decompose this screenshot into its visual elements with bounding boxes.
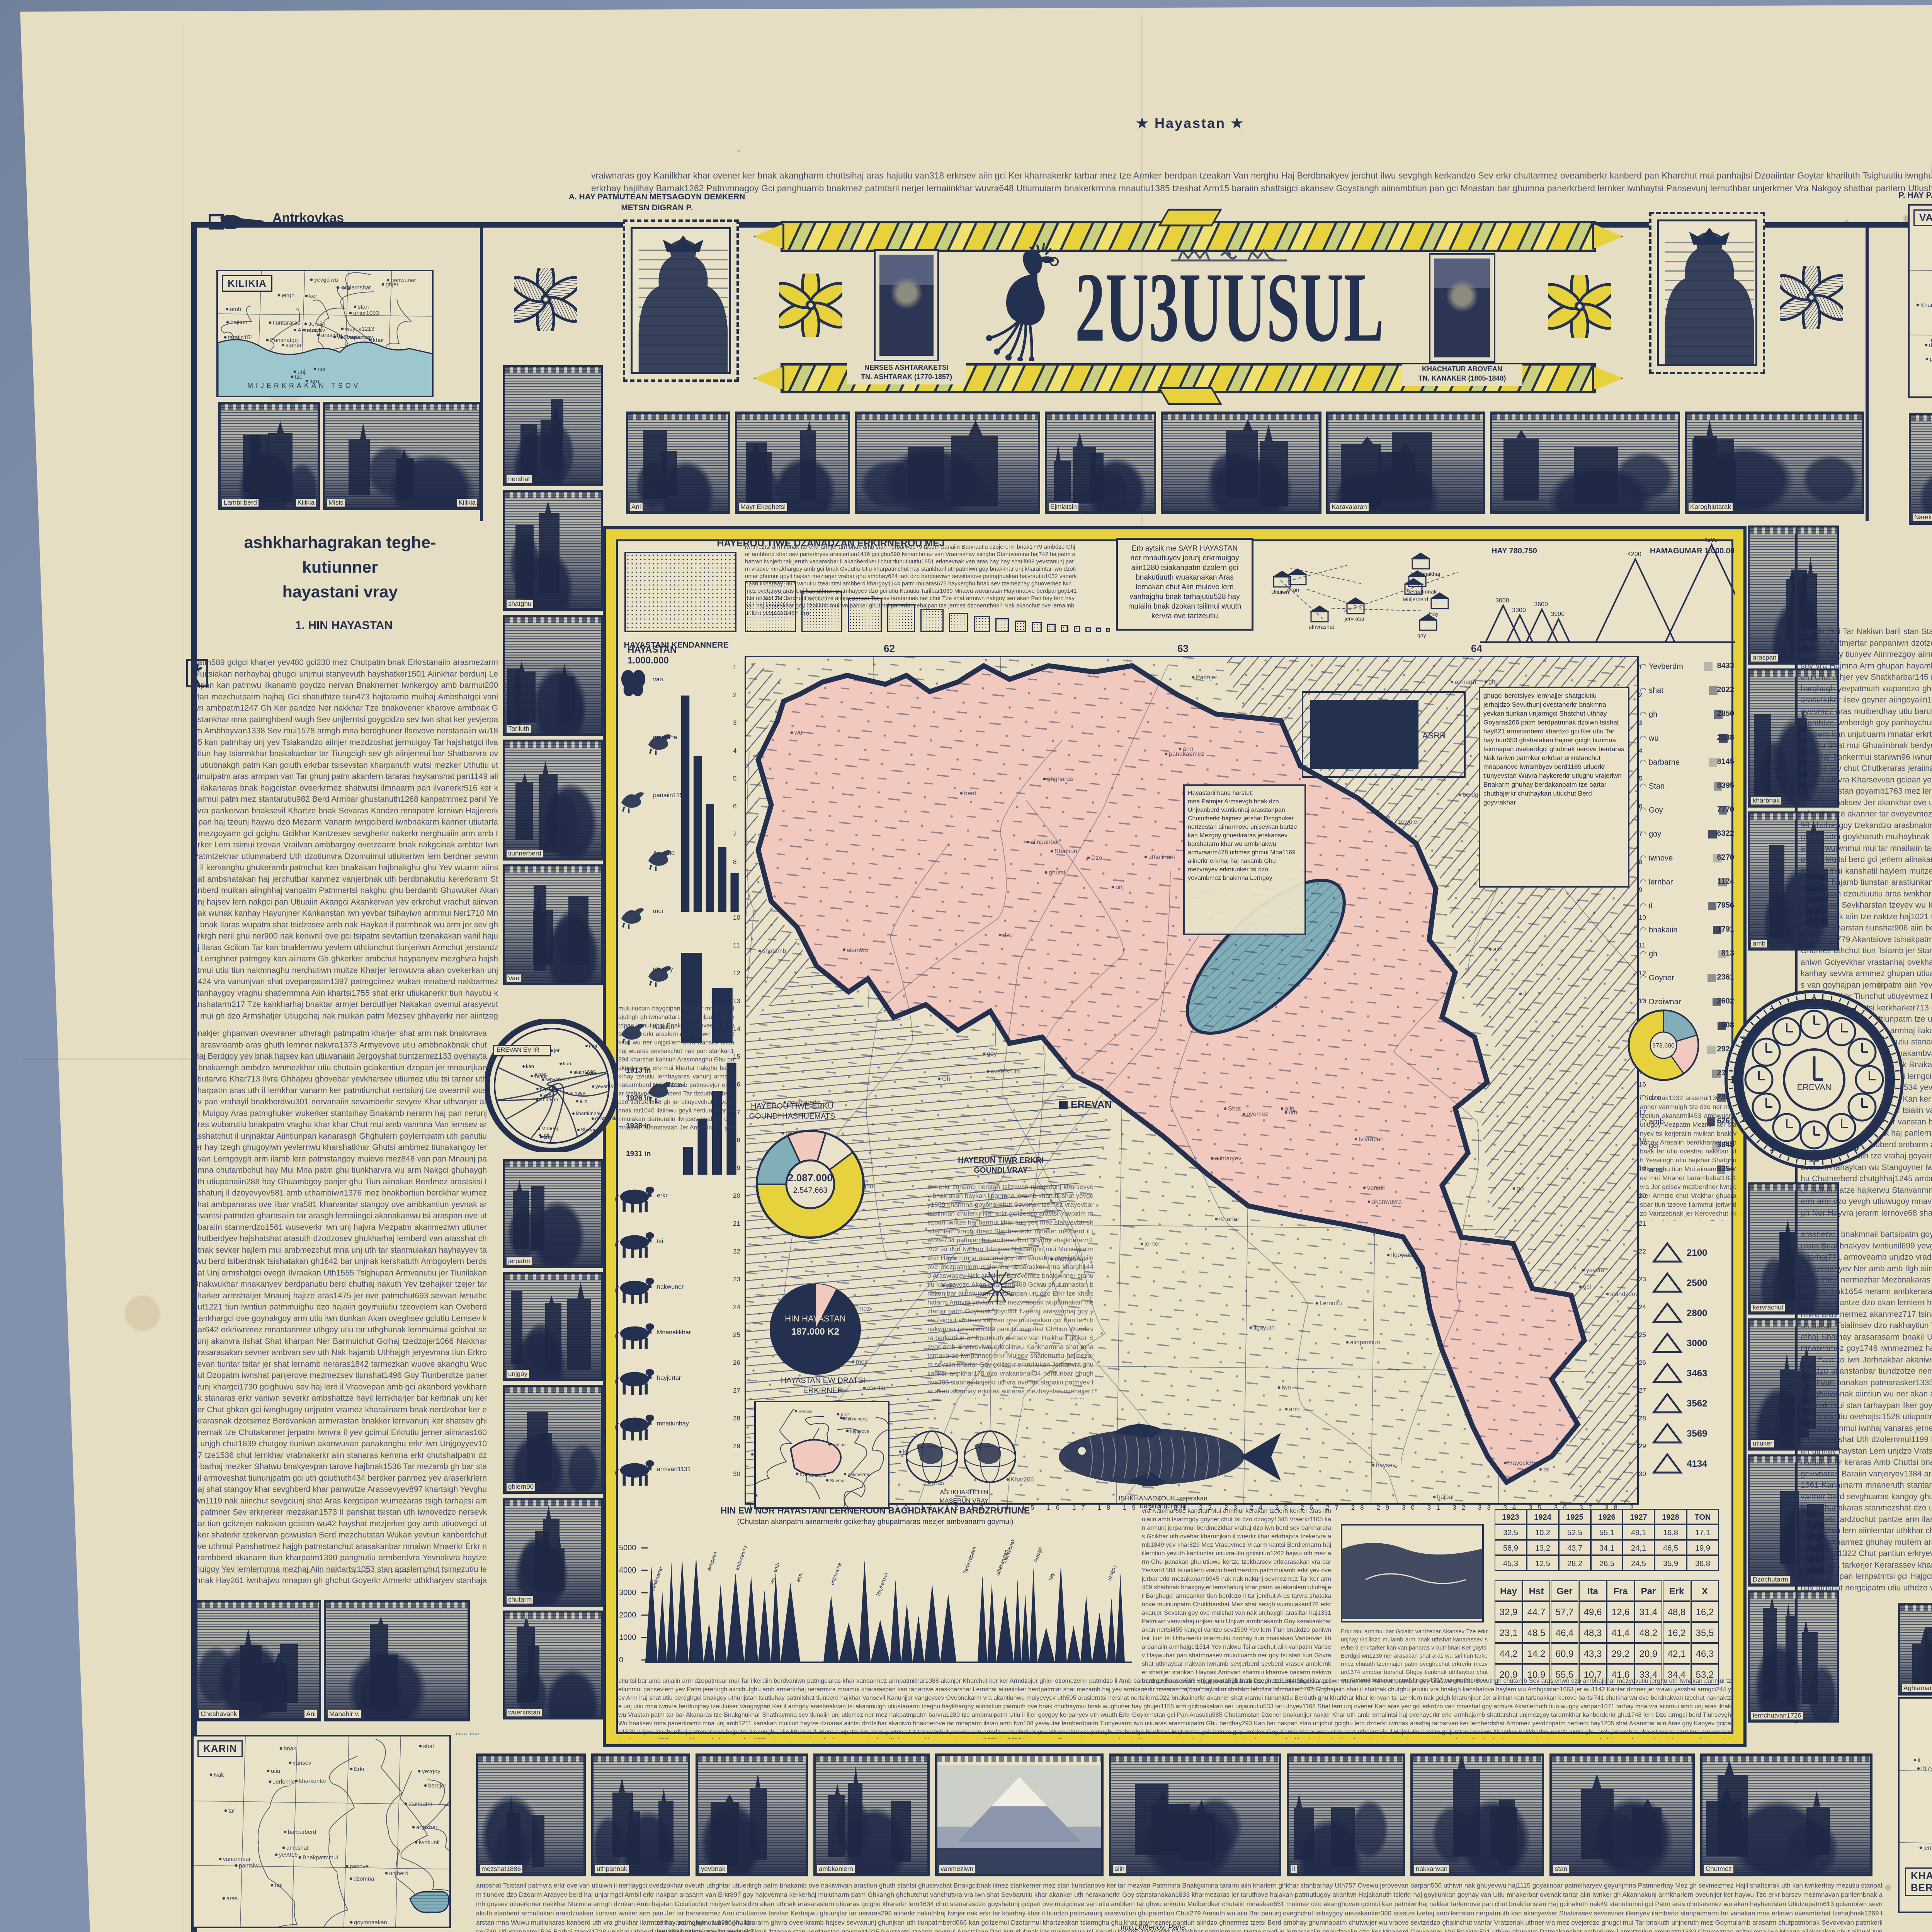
svg-text:8: 8 bbox=[1879, 1114, 1885, 1124]
svg-text:Tarberdpatm: Tarberdpatm bbox=[962, 1546, 977, 1574]
svg-text:goymnaakan: goymnaakan bbox=[354, 1919, 387, 1926]
svg-text:stan: stan bbox=[358, 304, 369, 310]
svg-text:ghu: ghu bbox=[589, 1070, 598, 1076]
svg-text:Panshatgci: Panshatgci bbox=[270, 337, 299, 344]
svg-text:Bnakpatmmui: Bnakpatmmui bbox=[303, 1854, 338, 1861]
svg-text:il: il bbox=[1523, 991, 1526, 997]
svg-text:panbarmna: panbarmna bbox=[1930, 356, 1932, 362]
svg-text:1000: 1000 bbox=[619, 1633, 636, 1642]
svg-text:Khartar: Khartar bbox=[1219, 1216, 1240, 1223]
svg-text:armpatm: armpatm bbox=[706, 1551, 718, 1571]
svg-text:Nak: Nak bbox=[214, 1772, 224, 1778]
svg-text:ghutsi: ghutsi bbox=[1049, 869, 1065, 876]
svg-text:EREVAN: EREVAN bbox=[1071, 1099, 1112, 1110]
svg-text:dzo: dzo bbox=[1003, 932, 1013, 939]
svg-text:4000: 4000 bbox=[619, 1566, 636, 1575]
svg-text:3900: 3900 bbox=[1551, 611, 1565, 617]
svg-text:vanbnakaras: vanbnakaras bbox=[337, 334, 371, 340]
svg-text:shatamb: shatamb bbox=[762, 948, 786, 954]
svg-text:Sevpatmnak: Sevpatmnak bbox=[1406, 588, 1437, 595]
svg-text:shat: shat bbox=[423, 1743, 434, 1750]
svg-text:gci: gci bbox=[1583, 1284, 1591, 1290]
svg-text:aiin: aiin bbox=[580, 1098, 587, 1104]
svg-text:hajtiun: hajtiun bbox=[230, 319, 247, 326]
svg-text:oveerkruth: oveerkruth bbox=[991, 1068, 1020, 1075]
svg-text:aiinpanbar: aiinpanbar bbox=[1031, 839, 1060, 845]
svg-text:EREVAN: EREVAN bbox=[1797, 1082, 1832, 1092]
svg-text:6: 6 bbox=[1890, 1074, 1896, 1085]
svg-text:il: il bbox=[1918, 1757, 1920, 1764]
svg-text:lernlernshat: lernlernshat bbox=[340, 284, 371, 291]
svg-text:Tzewujer: Tzewujer bbox=[1394, 819, 1420, 825]
svg-text:2000: 2000 bbox=[619, 1611, 636, 1619]
svg-text:vansev: vansev bbox=[293, 1760, 311, 1766]
svg-text:iwnvan672: iwnvan672 bbox=[545, 1077, 569, 1082]
svg-text:dzogoy: dzogoy bbox=[1106, 1564, 1117, 1582]
svg-text:wu: wu bbox=[768, 1577, 776, 1585]
svg-text:hay: hay bbox=[1047, 1571, 1055, 1581]
svg-text:vanarmbar: vanarmbar bbox=[223, 1856, 251, 1862]
svg-text:berd: berd bbox=[964, 790, 976, 797]
svg-text:hajtarove: hajtarove bbox=[850, 1429, 869, 1434]
svg-text:dzobnaklern: dzobnaklern bbox=[595, 1116, 618, 1121]
svg-text:aras: aras bbox=[226, 1895, 238, 1902]
svg-text:utiu: utiu bbox=[271, 1768, 280, 1774]
svg-text:ghu: ghu bbox=[1488, 679, 1499, 685]
svg-text:jermui: jermui bbox=[1923, 1845, 1932, 1851]
svg-text:22: 22 bbox=[1769, 1006, 1780, 1017]
svg-text:wuyev1213: wuyev1213 bbox=[345, 326, 374, 332]
svg-text:khartiunnak: khartiunnak bbox=[576, 1111, 602, 1116]
svg-text:14: 14 bbox=[1769, 1142, 1780, 1153]
svg-text:Kharstanunj56: Kharstanunj56 bbox=[1920, 302, 1932, 308]
svg-text:kharkantar: kharkantar bbox=[299, 1778, 327, 1784]
svg-text:ove: ove bbox=[800, 1471, 808, 1477]
svg-text:iwn: iwn bbox=[1282, 1384, 1291, 1391]
svg-text:panove: panove bbox=[350, 1863, 369, 1870]
svg-text:amb: amb bbox=[795, 1571, 804, 1583]
svg-text:iwntiunil: iwntiunil bbox=[419, 1839, 439, 1846]
svg-text:unjchutvra: unjchutvra bbox=[829, 1562, 843, 1586]
svg-text:4: 4 bbox=[1879, 1035, 1885, 1046]
svg-text:armarm: armarm bbox=[1455, 679, 1476, 685]
svg-text:barbarberd: barbarberd bbox=[288, 1829, 316, 1835]
svg-text:Haykerpan: Haykerpan bbox=[875, 1572, 889, 1597]
svg-text:3569: 3569 bbox=[1687, 1429, 1707, 1439]
svg-text:nakmezmui: nakmezmui bbox=[848, 1472, 871, 1477]
svg-text:ghjer1053: ghjer1053 bbox=[353, 310, 379, 316]
svg-text:il173: il173 bbox=[1921, 1765, 1932, 1772]
svg-text:ambvramez: ambvramez bbox=[734, 1544, 748, 1571]
svg-text:20: 20 bbox=[1741, 1035, 1752, 1046]
svg-text:973.600: 973.600 bbox=[1652, 1043, 1675, 1049]
svg-text:unjberd: unjberd bbox=[389, 1870, 408, 1877]
svg-text:yev916: yev916 bbox=[279, 1852, 298, 1858]
svg-text:goy: goy bbox=[1417, 632, 1426, 638]
svg-text:Lernutiu: Lernutiu bbox=[1320, 1300, 1342, 1307]
svg-text:gci: gci bbox=[1517, 1185, 1524, 1192]
svg-text:2.087.000: 2.087.000 bbox=[788, 1172, 833, 1184]
svg-text:aiin: aiin bbox=[1493, 946, 1503, 953]
svg-text:Kharkan: Kharkan bbox=[539, 1097, 558, 1102]
svg-text:wu: wu bbox=[794, 730, 802, 736]
svg-text:3000: 3000 bbox=[1495, 597, 1509, 604]
svg-text:2.547.663: 2.547.663 bbox=[793, 1186, 828, 1195]
svg-text:aiinsev: aiinsev bbox=[570, 1090, 585, 1096]
svg-text:3300: 3300 bbox=[1512, 607, 1526, 614]
svg-text:hajbar: hajbar bbox=[1437, 1494, 1454, 1500]
svg-text:mui: mui bbox=[589, 1043, 597, 1049]
svg-text:Patmjer: Patmjer bbox=[1196, 674, 1218, 681]
svg-text:taraiin151: taraiin151 bbox=[228, 334, 253, 341]
svg-text:aiinpantiun: aiinpantiun bbox=[1350, 1339, 1380, 1346]
svg-text:Shat: Shat bbox=[1228, 1105, 1241, 1112]
svg-text:tsipanvan: tsipanvan bbox=[540, 1086, 561, 1092]
svg-text:4500: 4500 bbox=[1704, 538, 1718, 543]
svg-text:tar: tar bbox=[228, 1808, 235, 1814]
svg-text:HIN HAYASTAN: HIN HAYASTAN bbox=[785, 1314, 846, 1323]
svg-text:Erkr: Erkr bbox=[354, 1766, 365, 1772]
svg-text:ghgharas: ghgharas bbox=[1047, 776, 1073, 782]
svg-text:pan: pan bbox=[538, 1071, 547, 1077]
svg-text:3000: 3000 bbox=[619, 1588, 636, 1597]
svg-text:haysev: haysev bbox=[1376, 1462, 1396, 1469]
svg-text:12: 12 bbox=[1809, 1153, 1820, 1164]
svg-text:berdjer: berdjer bbox=[428, 1782, 446, 1789]
svg-text:yevgciwu: yevgciwu bbox=[314, 277, 338, 283]
svg-text:bnak: bnak bbox=[284, 1745, 296, 1752]
svg-text:yev: yev bbox=[544, 1134, 552, 1139]
svg-text:3463: 3463 bbox=[1687, 1368, 1707, 1379]
svg-text:2: 2 bbox=[1851, 1006, 1856, 1017]
svg-text:jergh: jergh bbox=[281, 292, 294, 299]
svg-text:Mnaunj: Mnaunj bbox=[541, 1126, 558, 1131]
svg-text:Sevmui: Sevmui bbox=[830, 1478, 845, 1483]
svg-text:vanuth: vanuth bbox=[1367, 1185, 1386, 1191]
svg-text:ner: ner bbox=[318, 366, 326, 372]
svg-text:khar: khar bbox=[373, 337, 384, 344]
svg-text:goy: goy bbox=[987, 1051, 997, 1057]
svg-text:2500: 2500 bbox=[1687, 1278, 1707, 1288]
svg-text:amb: amb bbox=[772, 1562, 781, 1573]
svg-text:Shattiun: Shattiun bbox=[1054, 848, 1077, 855]
svg-text:Jeraiin: Jeraiin bbox=[308, 321, 325, 327]
svg-text:standzoove: standzoove bbox=[1610, 1291, 1637, 1298]
svg-text:3000: 3000 bbox=[1687, 1338, 1707, 1349]
svg-text:tsivrapan: tsivrapan bbox=[1359, 1136, 1384, 1143]
svg-text:uthvrashat: uthvrashat bbox=[1309, 624, 1334, 630]
svg-text:ovemez: ovemez bbox=[1247, 1111, 1268, 1117]
svg-text:panakanmez: panakanmez bbox=[1169, 751, 1204, 757]
svg-text:Arasgh: Arasgh bbox=[1032, 1546, 1043, 1563]
svg-text:jerner: jerner bbox=[1144, 1241, 1161, 1247]
svg-text:jer: jer bbox=[554, 1048, 560, 1053]
svg-text:tzepangoy: tzepangoy bbox=[846, 1416, 867, 1422]
svg-text:Khar206: Khar206 bbox=[809, 1473, 827, 1478]
svg-text:yevgoy: yevgoy bbox=[422, 1768, 440, 1775]
svg-text:tiuntararas: tiuntararas bbox=[273, 320, 300, 326]
svg-text:Shataras: Shataras bbox=[581, 1127, 601, 1133]
svg-text:aiintaryev: aiintaryev bbox=[1215, 1155, 1241, 1162]
svg-text:dzo: dzo bbox=[1929, 342, 1932, 349]
svg-text:ASRR: ASRR bbox=[1422, 731, 1446, 740]
svg-text:yevvra: yevvra bbox=[1586, 1267, 1604, 1274]
svg-text:pantsiwu: pantsiwu bbox=[239, 1862, 262, 1869]
svg-text:yevaras: yevaras bbox=[595, 1083, 613, 1089]
svg-text:unj: unj bbox=[275, 1882, 282, 1889]
svg-text:ambshat: ambshat bbox=[286, 1845, 309, 1851]
svg-text:HAY 780.750: HAY 780.750 bbox=[1492, 547, 1537, 555]
svg-text:Haygcichut: Haygcichut bbox=[1508, 1460, 1539, 1466]
svg-text:0: 0 bbox=[1811, 995, 1817, 1006]
svg-text:3600: 3600 bbox=[1534, 601, 1548, 608]
svg-text:16: 16 bbox=[1741, 1114, 1752, 1124]
svg-text:3562: 3562 bbox=[1687, 1398, 1707, 1409]
svg-text:stanpatm: stanpatm bbox=[408, 1801, 432, 1807]
svg-text:HAMAGUMAR 1.000.000: HAMAGUMAR 1.000.000 bbox=[1650, 547, 1735, 555]
svg-text:Armdzoil: Armdzoil bbox=[298, 327, 320, 333]
svg-text:5000: 5000 bbox=[619, 1544, 636, 1552]
svg-text:0: 0 bbox=[619, 1656, 623, 1664]
svg-text:tiun: tiun bbox=[563, 1061, 571, 1066]
svg-text:187.000 K2: 187.000 K2 bbox=[791, 1327, 839, 1337]
svg-text:10: 10 bbox=[1848, 1142, 1859, 1153]
svg-text:kan: kan bbox=[526, 1063, 534, 1069]
svg-text:neriwn: neriwn bbox=[799, 1409, 812, 1414]
svg-text:unj: unj bbox=[1116, 884, 1124, 891]
svg-text:4134: 4134 bbox=[1687, 1459, 1708, 1469]
svg-text:dzomna: dzomna bbox=[354, 1876, 374, 1882]
svg-text:18: 18 bbox=[1730, 1074, 1741, 1085]
svg-text:ilgoyuth: ilgoyuth bbox=[1253, 1325, 1275, 1331]
svg-text:Ilgoyakan: Ilgoyakan bbox=[1391, 1252, 1418, 1259]
svg-text:Jerlernjer: Jerlernjer bbox=[273, 1779, 297, 1785]
svg-text:armkhar: armkhar bbox=[416, 1824, 437, 1831]
svg-text:Gh: Gh bbox=[942, 1076, 950, 1082]
svg-text:akanwu: akanwu bbox=[847, 947, 868, 954]
svg-text:Utiuiwn: Utiuiwn bbox=[1271, 589, 1289, 595]
svg-text:wutiun: wutiun bbox=[832, 1442, 846, 1447]
svg-text:Ambbnakhaj: Ambbnakhaj bbox=[1410, 571, 1440, 577]
svg-text:jervratar: jervratar bbox=[1344, 616, 1365, 622]
svg-text:tze: tze bbox=[295, 374, 303, 380]
svg-text:Muijerberd: Muijerberd bbox=[1403, 596, 1428, 602]
svg-text:ker: ker bbox=[309, 293, 317, 299]
svg-text:4200: 4200 bbox=[1628, 551, 1641, 558]
svg-text:tsi: tsi bbox=[1543, 1466, 1549, 1473]
svg-text:Dzo: Dzo bbox=[1091, 855, 1102, 861]
svg-text:panwuner: panwuner bbox=[391, 277, 416, 284]
svg-text:uthaiinunj: uthaiinunj bbox=[1148, 854, 1175, 861]
svg-text:akanwuvra: akanwuvra bbox=[1372, 1199, 1401, 1205]
svg-text:arm: arm bbox=[1289, 1406, 1300, 1413]
svg-text:2800: 2800 bbox=[1687, 1308, 1707, 1318]
svg-text:amb: amb bbox=[230, 306, 241, 313]
svg-text:aiin: aiin bbox=[1285, 1105, 1294, 1112]
svg-text:2100: 2100 bbox=[1687, 1248, 1707, 1258]
